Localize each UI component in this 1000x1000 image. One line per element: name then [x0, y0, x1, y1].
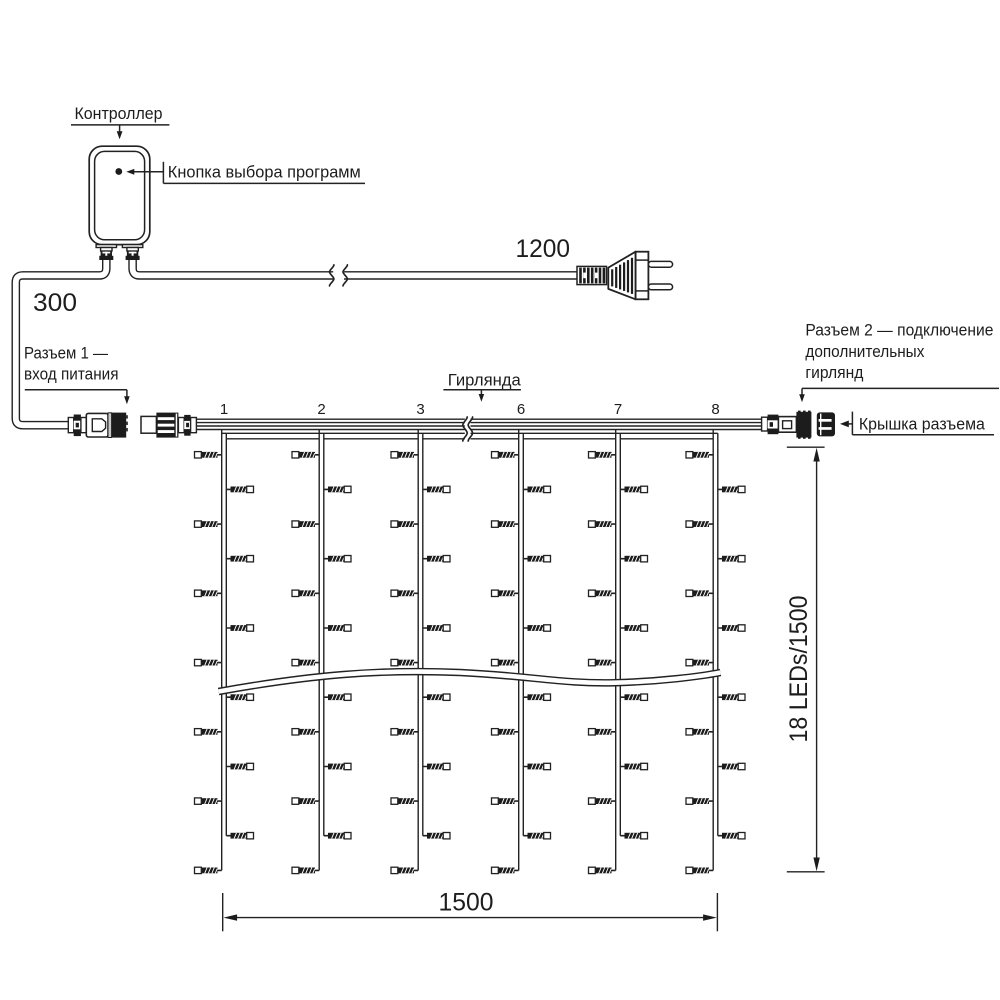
- svg-text:гирлянд: гирлянд: [805, 363, 863, 382]
- svg-text:6: 6: [517, 401, 525, 418]
- svg-text:1: 1: [220, 401, 228, 418]
- svg-text:Гирлянда: Гирлянда: [448, 371, 522, 390]
- svg-text:3: 3: [416, 401, 424, 418]
- svg-text:Кнопка выбора программ: Кнопка выбора программ: [168, 163, 361, 182]
- svg-text:Разъем 2 — подключение: Разъем 2 — подключение: [805, 320, 993, 339]
- svg-text:7: 7: [614, 401, 622, 418]
- svg-text:вход питания: вход питания: [24, 364, 119, 383]
- svg-text:8: 8: [711, 401, 719, 418]
- svg-text:Разъем 1 —: Разъем 1 —: [24, 343, 108, 362]
- svg-text:1200: 1200: [516, 235, 571, 263]
- svg-text:дополнительных: дополнительных: [805, 342, 924, 361]
- svg-text:Крышка разъема: Крышка разъема: [859, 414, 985, 433]
- svg-text:1500: 1500: [439, 889, 494, 917]
- svg-text:18 LEDs/1500: 18 LEDs/1500: [785, 596, 813, 743]
- svg-text:Контроллер: Контроллер: [75, 104, 163, 123]
- svg-text:2: 2: [317, 401, 325, 418]
- svg-text:300: 300: [33, 289, 77, 317]
